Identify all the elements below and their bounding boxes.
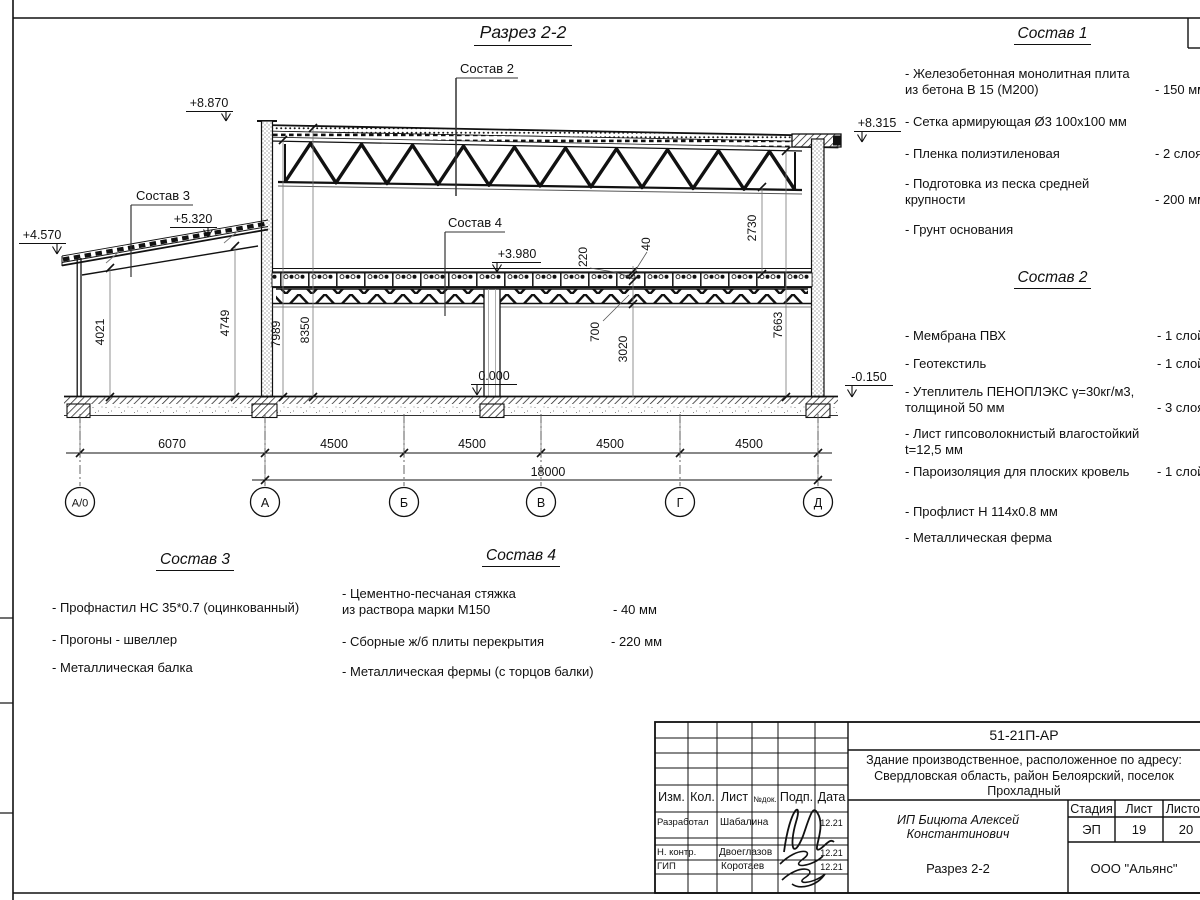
list-item-value: - 150 мм (1155, 82, 1200, 98)
list-title: Состав 1 (905, 26, 1200, 45)
list-item: - Мембрана ПВХ (905, 328, 1006, 344)
list-item: - Геотекстиль (905, 356, 986, 372)
list-item: - Лист гипсоволокнистый влагостойкий t=1… (905, 426, 1139, 458)
sheets-value: 20 (1163, 822, 1200, 837)
list-item: - Утеплитель ПЕНОПЛЭКС γ=30кг/м3, толщин… (905, 384, 1134, 416)
signature-razrabotal (784, 810, 834, 852)
elevation-roof-left: +8.870 (190, 96, 229, 110)
list-item-value: - 2 слоя (1155, 146, 1200, 162)
wall-axis-d (812, 139, 825, 397)
col-izm: Изм. (655, 790, 688, 804)
axis-label-v: В (537, 496, 545, 510)
dim-span-4: 4500 (596, 437, 624, 451)
mezzanine-floor (272, 269, 812, 308)
dim-slab: 220 (576, 247, 590, 267)
list-item: - Металлическая фермы (с торцов балки) (342, 664, 594, 680)
list-title: Состав 4 (370, 548, 672, 567)
axis-label-a0: А/0 (72, 498, 89, 510)
dim-span-3: 4500 (458, 437, 486, 451)
wall-axis-a (262, 121, 273, 397)
axis-label-g: Г (677, 496, 684, 510)
list-item: - Железобетонная монолитная плита из бет… (905, 66, 1130, 98)
col-podp: Подп. (778, 790, 815, 804)
list-item: - Подготовка из песка средней крупности (905, 176, 1089, 208)
main-building-section (257, 121, 841, 397)
list-title: Состав 2 (905, 270, 1200, 289)
list-item-value: - 1 слой (1157, 356, 1200, 372)
dim-main-left-outer: 8350 (298, 316, 312, 343)
row-name: Двоеглазов (719, 847, 772, 858)
dim-span-1: 6070 (158, 437, 186, 451)
doc-number: 51-21П-АР (850, 727, 1198, 743)
elevation-floor: 0.000 (478, 369, 509, 383)
row-name: Коротаев (721, 861, 764, 872)
dim-main-right: 7663 (771, 311, 785, 338)
dim-total: 18000 (531, 465, 566, 479)
row-role: ГИП (657, 861, 676, 872)
composition-list-4: Состав 4 - Цементно-песчаная стяжка из р… (342, 548, 672, 571)
list-item: - Сетка армирующая Ø3 100х100 мм (905, 114, 1127, 130)
axis-label-d: Д (814, 496, 823, 510)
leader-label-sostav3: Состав 3 (136, 188, 190, 203)
axis-label-b: Б (400, 496, 408, 510)
stage-label: Стадия (1068, 802, 1115, 816)
dim-truss: 700 (588, 322, 602, 342)
list-item-value: - 3 слоя (1157, 400, 1200, 416)
elevation-annex-low: +4.570 (23, 228, 62, 242)
row-role: Н. контр. (657, 847, 696, 858)
list-item: - Цементно-песчаная стяжка из раствора м… (342, 586, 516, 618)
drawing-title: Разрез 2-2 (448, 22, 598, 46)
composition-list-1: Состав 1 - Железобетонная монолитная пли… (905, 26, 1200, 49)
col-kol: Кол. (688, 790, 717, 804)
stage-value: ЭП (1068, 822, 1115, 837)
annex-section (62, 220, 268, 397)
dim-screed: 40 (639, 237, 653, 251)
list-item-value: - 220 мм (611, 634, 662, 650)
client-name: ИП Бицюта Алексей Константинович (850, 813, 1066, 841)
elevation-mezzanine: +3.980 (498, 247, 537, 261)
dim-roof-clear: 2730 (745, 214, 759, 241)
list-title: Состав 3 (45, 552, 345, 571)
sheet-value: 19 (1115, 822, 1163, 837)
composition-list-2: Состав 2 - Мембрана ПВХ - 1 слой - Геоте… (905, 270, 1200, 293)
list-item: - Профлист Н 114х0.8 мм (905, 504, 1058, 520)
col-data: Дата (815, 790, 848, 804)
vertical-dimension-lines (106, 124, 790, 401)
list-item: - Профнастил НС 35*0.7 (оцинкованный) (52, 600, 299, 616)
list-item-value: - 1 слой (1157, 464, 1200, 480)
dim-span-2: 4500 (320, 437, 348, 451)
ground-floor (64, 397, 838, 418)
row-name: Шабалина (720, 817, 768, 828)
elevation-annex-high: +5.320 (174, 212, 213, 226)
col-list: Лист (717, 790, 752, 804)
leader-label-sostav2: Состав 2 (460, 61, 514, 76)
company-name: ООО "Альянс" (1068, 845, 1200, 893)
sheet-label: Лист (1115, 802, 1163, 816)
dim-annex-right: 4749 (218, 309, 232, 336)
row-date: 12.21 (815, 848, 848, 858)
elevation-ground: -0.150 (851, 370, 886, 384)
list-item: - Сборные ж/б плиты перекрытия (342, 634, 544, 650)
sheet-title: Разрез 2-2 (848, 845, 1068, 893)
row-role: Разработал (657, 817, 709, 828)
list-item: - Пароизоляция для плоских кровель (905, 464, 1129, 480)
list-item-value: - 40 мм (613, 602, 657, 618)
list-item: - Пленка полиэтиленовая (905, 146, 1060, 162)
axis-bubbles: А/0 А Б В Г Д (66, 488, 833, 517)
list-item: - Металлическая ферма (905, 530, 1052, 546)
composition-list-3: Состав 3 - Профнастил НС 35*0.7 (оцинков… (45, 552, 345, 575)
col-ndoc: №док. (752, 795, 778, 804)
dim-span-5: 4500 (735, 437, 763, 451)
drawing-sheet: Состав 2 Состав 3 Состав 4 +8.870 +8.315… (0, 0, 1200, 900)
list-item: - Прогоны - швеллер (52, 632, 177, 648)
elevation-roof-right: +8.315 (858, 116, 897, 130)
sheets-label: Листов (1163, 802, 1200, 816)
dim-ground-floor: 3020 (616, 335, 630, 362)
list-item-value: - 1 слой (1157, 328, 1200, 344)
project-description: Здание производственное, расположенное п… (852, 753, 1196, 800)
list-item-value: - 200 мм (1155, 192, 1200, 208)
dim-main-left-inner: 7989 (269, 320, 283, 347)
axis-label-a: А (261, 496, 270, 510)
leader-label-sostav4: Состав 4 (448, 215, 502, 230)
list-item: - Металлическая балка (52, 660, 193, 676)
row-date: 12.21 (815, 862, 848, 872)
row-date: 12.21 (815, 818, 848, 828)
list-item: - Грунт основания (905, 222, 1013, 238)
dim-annex-left: 4021 (93, 318, 107, 345)
